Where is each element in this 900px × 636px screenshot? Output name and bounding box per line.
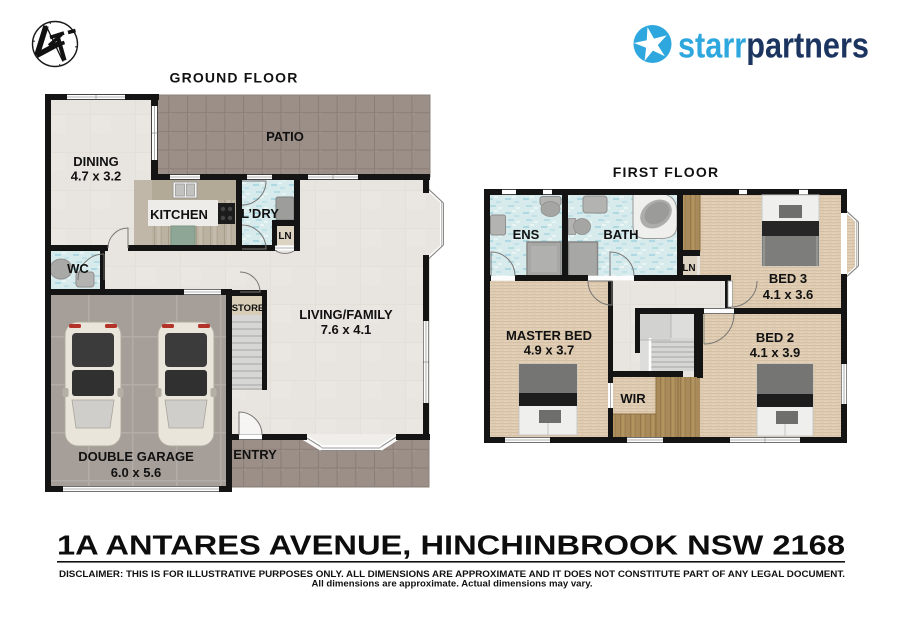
svg-text:6.0 x 5.6: 6.0 x 5.6	[111, 465, 162, 480]
svg-text:LN: LN	[278, 231, 291, 242]
svg-text:1A ANTARES AVENUE, HINCHINBROO: 1A ANTARES AVENUE, HINCHINBROOK NSW 2168	[57, 530, 845, 561]
svg-text:ENS: ENS	[513, 227, 540, 242]
svg-text:L’DRY: L’DRY	[241, 206, 279, 221]
svg-text:ENTRY: ENTRY	[233, 447, 277, 462]
svg-text:starrpartners: starrpartners	[678, 25, 869, 66]
svg-text:FIRST FLOOR: FIRST FLOOR	[613, 164, 720, 180]
svg-text:7.6 x 4.1: 7.6 x 4.1	[321, 322, 372, 337]
svg-text:BED 3: BED 3	[769, 271, 807, 286]
svg-text:LN: LN	[682, 263, 695, 274]
svg-text:DISCLAIMER: THIS IS FOR ILLUST: DISCLAIMER: THIS IS FOR ILLUSTRATIVE PUR…	[59, 569, 845, 579]
svg-text:BATH: BATH	[603, 227, 638, 242]
svg-text:BED 2: BED 2	[756, 330, 794, 345]
svg-text:4.9 x 3.7: 4.9 x 3.7	[524, 343, 575, 358]
svg-text:All dimensions are approximate: All dimensions are approximate. Actual d…	[312, 579, 593, 589]
svg-text:STORE: STORE	[232, 303, 265, 314]
svg-text:GROUND FLOOR: GROUND FLOOR	[170, 70, 299, 86]
svg-text:DOUBLE GARAGE: DOUBLE GARAGE	[78, 449, 194, 464]
svg-text:KITCHEN: KITCHEN	[150, 207, 208, 222]
svg-text:4.7 x 3.2: 4.7 x 3.2	[71, 169, 122, 184]
svg-text:WC: WC	[67, 261, 89, 276]
svg-text:PATIO: PATIO	[266, 129, 304, 144]
svg-text:4.1 x 3.6: 4.1 x 3.6	[763, 287, 814, 302]
svg-text:4.1 x 3.9: 4.1 x 3.9	[750, 345, 801, 360]
svg-text:DINING: DINING	[73, 154, 119, 169]
svg-text:WIR: WIR	[620, 391, 646, 406]
svg-text:LIVING/FAMILY: LIVING/FAMILY	[299, 307, 393, 322]
svg-text:MASTER BED: MASTER BED	[506, 328, 592, 343]
